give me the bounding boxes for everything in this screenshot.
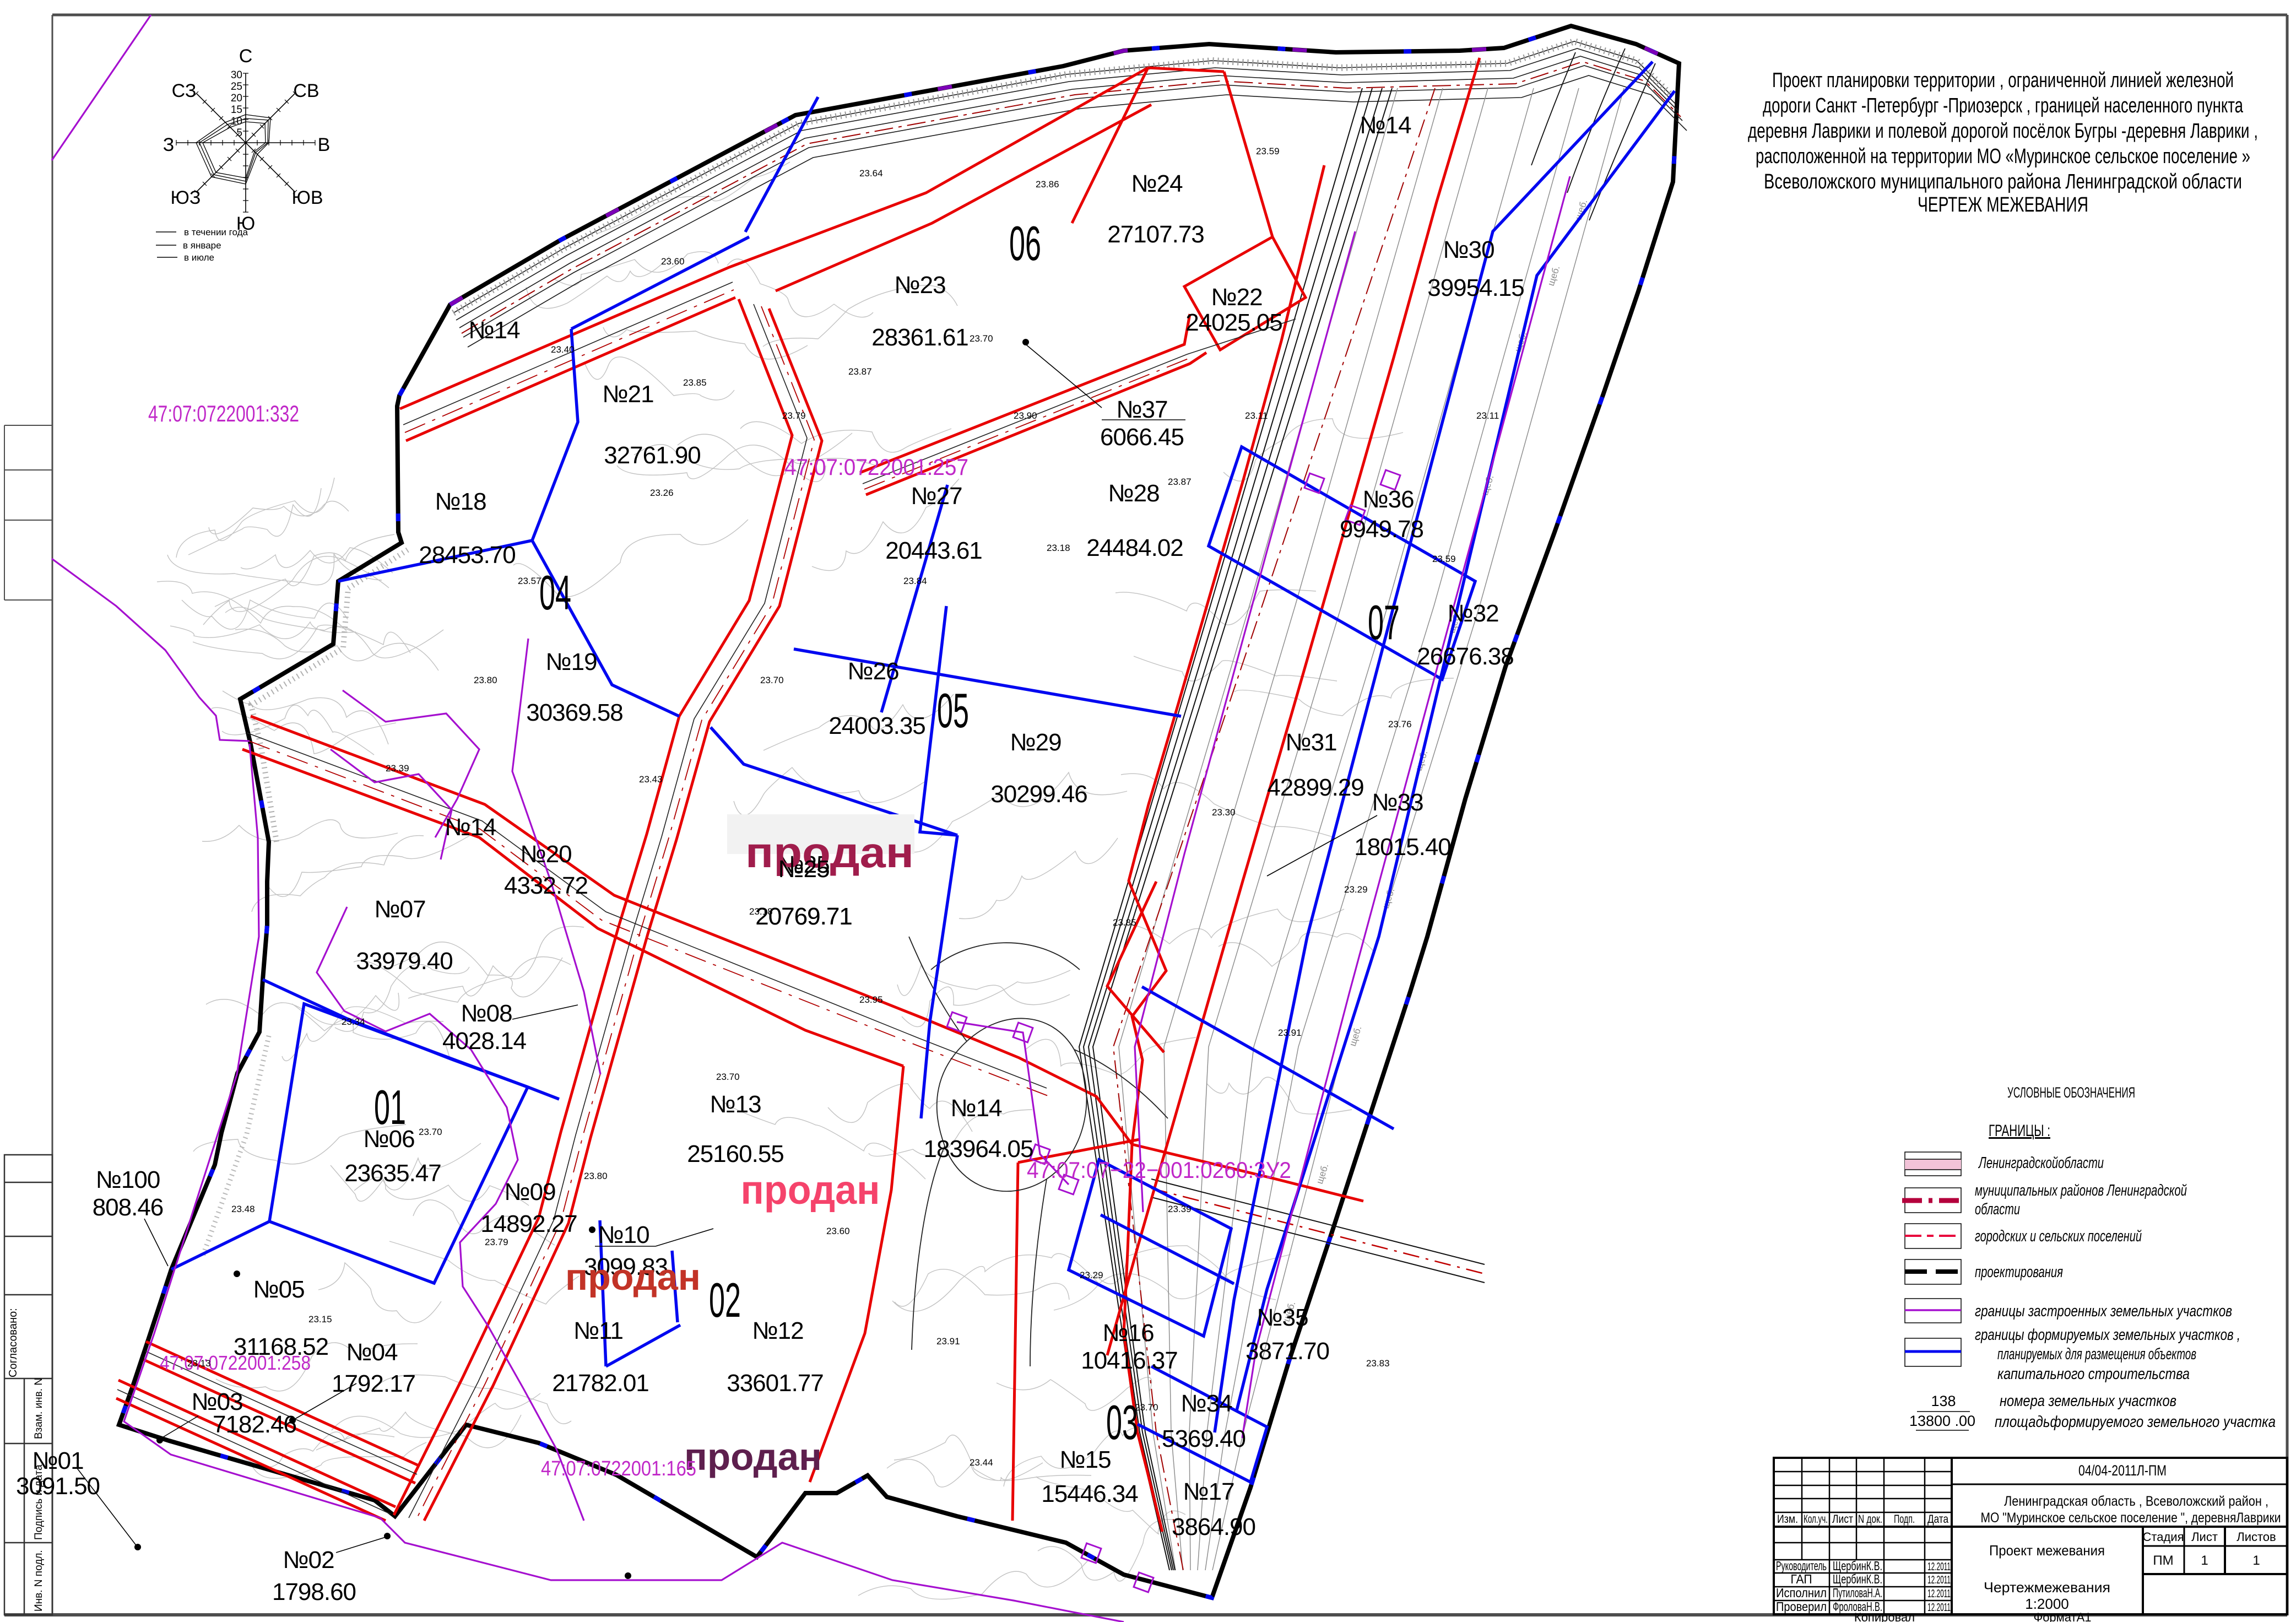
svg-text:23.70: 23.70 bbox=[760, 675, 784, 685]
svg-text:23.60: 23.60 bbox=[826, 1226, 850, 1236]
svg-text:№14: №14 bbox=[445, 814, 496, 841]
svg-text:47:07:0722001:257: 47:07:0722001:257 bbox=[784, 454, 968, 480]
svg-text:продан: продан bbox=[565, 1256, 701, 1298]
svg-text:47:07:0722001:165: 47:07:0722001:165 bbox=[541, 1457, 696, 1480]
svg-text:ЮВ: ЮВ bbox=[291, 187, 323, 208]
svg-text:№18: №18 bbox=[435, 488, 486, 515]
svg-text:23.70: 23.70 bbox=[716, 1072, 740, 1082]
svg-text:808.46: 808.46 bbox=[93, 1194, 164, 1221]
svg-text:Чертежмежевания: Чертежмежевания bbox=[1984, 1579, 2110, 1596]
svg-text:муниципальных районов Ленинг: муниципальных районов Ленинградской bbox=[1975, 1182, 2187, 1199]
svg-text:23.39: 23.39 bbox=[1168, 1204, 1192, 1214]
svg-text:проектирования: проектирования bbox=[1975, 1263, 2063, 1281]
svg-text:№05: №05 bbox=[253, 1276, 304, 1303]
svg-text:23.79: 23.79 bbox=[485, 1237, 508, 1247]
svg-text:4028.14: 4028.14 bbox=[442, 1028, 527, 1055]
svg-text:Исполнил: Исполнил bbox=[1776, 1586, 1827, 1600]
svg-text:С: С bbox=[239, 46, 253, 67]
svg-text:№16: №16 bbox=[1102, 1320, 1154, 1347]
svg-text:дороги Санкт -Петербург -Прио: дороги Санкт -Петербург -Приозерск , гра… bbox=[1763, 94, 2244, 117]
svg-text:городских и сельских поселений: городских и сельских поселений bbox=[1975, 1228, 2142, 1245]
svg-text:04/04-2011Л-ПМ: 04/04-2011Л-ПМ bbox=[2078, 1462, 2167, 1479]
svg-text:23.90: 23.90 bbox=[1014, 410, 1037, 421]
svg-text:138: 138 bbox=[1931, 1393, 1956, 1409]
svg-text:№31: №31 bbox=[1285, 729, 1336, 756]
svg-text:Всеволожского муниципального: Всеволожского муниципального района Лени… bbox=[1764, 170, 2242, 193]
svg-text:01: 01 bbox=[374, 1080, 406, 1134]
svg-text:33979.40: 33979.40 bbox=[356, 948, 453, 975]
svg-text:28453.70: 28453.70 bbox=[419, 542, 516, 569]
svg-text:3864.90: 3864.90 bbox=[1172, 1513, 1255, 1540]
svg-text:23.64: 23.64 bbox=[859, 168, 883, 179]
svg-text:23.70: 23.70 bbox=[1135, 1402, 1158, 1413]
svg-text:№09: №09 bbox=[504, 1178, 555, 1205]
svg-text:№22: №22 bbox=[1211, 284, 1262, 311]
svg-text:23.18: 23.18 bbox=[1047, 543, 1070, 553]
svg-text:№32: №32 bbox=[1447, 600, 1498, 627]
svg-text:№37: №37 bbox=[1116, 396, 1167, 423]
svg-text:№28: №28 bbox=[1108, 480, 1159, 507]
svg-text:23.83: 23.83 bbox=[1366, 1358, 1390, 1369]
svg-text:№14: №14 bbox=[950, 1095, 1002, 1122]
svg-text:Кол.уч.: Кол.уч. bbox=[1804, 1513, 1828, 1526]
svg-text:Инв. N подл.: Инв. N подл. bbox=[33, 1550, 45, 1612]
svg-text:СВ: СВ bbox=[293, 80, 319, 101]
svg-text:№30: №30 bbox=[1443, 236, 1494, 263]
svg-text:номера земельных участков: номера земельных участков bbox=[2000, 1392, 2176, 1410]
svg-text:в январе: в январе bbox=[183, 240, 221, 251]
svg-text:в течении года: в течении года bbox=[184, 227, 248, 237]
svg-text:39954.15: 39954.15 bbox=[1427, 274, 1524, 301]
svg-text:23.39: 23.39 bbox=[386, 763, 409, 774]
svg-text:ЮЗ: ЮЗ bbox=[171, 187, 201, 208]
svg-text:23.26: 23.26 bbox=[650, 488, 674, 498]
svg-text:№13: №13 bbox=[710, 1091, 761, 1118]
svg-text:ФорматА1: ФорматА1 bbox=[2033, 1610, 2091, 1622]
svg-text:23.13: 23.13 bbox=[187, 1358, 211, 1369]
svg-text:Проверил: Проверил bbox=[1776, 1599, 1827, 1614]
svg-text:24025.05: 24025.05 bbox=[1185, 309, 1282, 336]
svg-text:МО "Муринское сельское посе: МО "Муринское сельское поселение ", дере… bbox=[1981, 1510, 2281, 1526]
svg-text:23.59: 23.59 bbox=[1256, 146, 1280, 156]
svg-text:23.15: 23.15 bbox=[308, 1314, 332, 1324]
svg-text:23.57: 23.57 bbox=[518, 576, 541, 586]
svg-text:12.2011: 12.2011 bbox=[1927, 1602, 1951, 1614]
svg-text:24003.35: 24003.35 bbox=[828, 712, 925, 739]
svg-text:границы формируемых земельны: границы формируемых земельных участков , bbox=[1975, 1326, 2240, 1344]
svg-text:№02: №02 bbox=[283, 1547, 334, 1574]
svg-text:5369.40: 5369.40 bbox=[1162, 1425, 1246, 1452]
svg-text:№36: №36 bbox=[1362, 486, 1414, 513]
svg-text:области: области bbox=[1975, 1201, 2020, 1218]
svg-text:47:07:0722001:332: 47:07:0722001:332 bbox=[148, 401, 299, 426]
svg-text:№21: №21 bbox=[602, 381, 653, 408]
svg-text:23.40: 23.40 bbox=[551, 344, 575, 355]
svg-text:06: 06 bbox=[1009, 216, 1041, 271]
svg-text:ЩербинК.В.: ЩербинК.В. bbox=[1833, 1559, 1882, 1573]
svg-text:23.60: 23.60 bbox=[661, 256, 685, 267]
svg-text:12.2011: 12.2011 bbox=[1927, 1588, 1951, 1600]
svg-text:Лист: Лист bbox=[2191, 1530, 2218, 1544]
svg-text:23.11: 23.11 bbox=[1245, 410, 1268, 421]
svg-text:СЗ: СЗ bbox=[172, 80, 197, 101]
svg-text:Проект планировки территории: Проект планировки территории , ограничен… bbox=[1772, 69, 2234, 92]
svg-text:23.34: 23.34 bbox=[342, 1017, 365, 1027]
svg-text:23.95: 23.95 bbox=[859, 994, 883, 1005]
svg-text:30: 30 bbox=[231, 69, 242, 81]
svg-text:ГАП: ГАП bbox=[1791, 1572, 1812, 1586]
svg-text:№34: №34 bbox=[1181, 1390, 1232, 1417]
svg-text:№15: №15 bbox=[1059, 1446, 1111, 1473]
svg-text:№27: №27 bbox=[911, 483, 962, 510]
svg-text:Копировал: Копировал bbox=[1854, 1610, 1915, 1622]
svg-text:10416.37: 10416.37 bbox=[1081, 1347, 1178, 1374]
svg-text:23.80: 23.80 bbox=[584, 1171, 608, 1181]
svg-text:23.18: 23.18 bbox=[749, 906, 773, 917]
svg-text:Подп.: Подп. bbox=[1894, 1513, 1915, 1526]
svg-text:23.29: 23.29 bbox=[1080, 1270, 1103, 1280]
svg-text:№33: №33 bbox=[1372, 789, 1423, 816]
svg-text:деревня Лаврики и полевой д: деревня Лаврики и полевой дорогой посёло… bbox=[1748, 120, 2258, 143]
svg-text:продан: продан bbox=[684, 1435, 822, 1478]
svg-text:№19: №19 bbox=[545, 648, 597, 675]
svg-text:15: 15 bbox=[231, 104, 242, 116]
svg-text:23.44: 23.44 bbox=[970, 1457, 993, 1468]
svg-text:23.59: 23.59 bbox=[1432, 554, 1456, 564]
svg-text:20443.61: 20443.61 bbox=[885, 537, 982, 564]
svg-text:28361.61: 28361.61 bbox=[871, 324, 968, 351]
svg-text:площадьформируемого земельног: площадьформируемого земельного участка bbox=[1995, 1413, 2276, 1431]
svg-text:05: 05 bbox=[937, 683, 969, 738]
svg-text:Ленинградская область , Всево: Ленинградская область , Всеволожский рай… bbox=[2004, 1494, 2268, 1509]
svg-text:23.76: 23.76 bbox=[1388, 719, 1412, 729]
svg-text:4332.72: 4332.72 bbox=[504, 872, 588, 899]
svg-text:10: 10 bbox=[231, 116, 242, 127]
svg-text:планируемых для размещения: планируемых для размещения объектов bbox=[1997, 1345, 2196, 1363]
svg-text:Согласовано:: Согласовано: bbox=[7, 1308, 19, 1377]
svg-text:04: 04 bbox=[539, 565, 571, 620]
svg-text:в июле: в июле bbox=[184, 252, 214, 263]
svg-text:23.85: 23.85 bbox=[1113, 917, 1136, 928]
svg-text:23.80: 23.80 bbox=[474, 675, 497, 685]
svg-text:№23: №23 bbox=[894, 272, 945, 299]
svg-text:ЧЕРТЕЖ МЕЖЕВАНИЯ: ЧЕРТЕЖ МЕЖЕВАНИЯ bbox=[1918, 193, 2088, 217]
svg-text:Взам. инв. N: Взам. инв. N bbox=[33, 1378, 45, 1439]
svg-text:5: 5 bbox=[236, 127, 242, 139]
svg-text:30369.58: 30369.58 bbox=[526, 699, 623, 726]
svg-text:47:07:0722001:258: 47:07:0722001:258 bbox=[160, 1351, 311, 1374]
svg-text:Руководитель: Руководитель bbox=[1776, 1559, 1827, 1573]
svg-text:14892.27: 14892.27 bbox=[480, 1210, 577, 1237]
svg-text:9949.78: 9949.78 bbox=[1340, 516, 1423, 543]
svg-text:границы застроенных земельны: границы застроенных земельных участков bbox=[1975, 1302, 2232, 1320]
svg-text:Ленинградскойобласти: Ленинградскойобласти bbox=[1978, 1154, 2104, 1172]
svg-text:Изм.: Изм. bbox=[1777, 1513, 1798, 1526]
svg-text:26676.38: 26676.38 bbox=[1417, 643, 1514, 670]
svg-text:З: З bbox=[163, 134, 175, 155]
svg-text:25: 25 bbox=[231, 81, 242, 93]
svg-text:1798.60: 1798.60 bbox=[272, 1578, 356, 1605]
svg-text:продан: продан bbox=[741, 1167, 880, 1213]
svg-text:Лист: Лист bbox=[1832, 1513, 1853, 1526]
svg-text:7182.46: 7182.46 bbox=[213, 1411, 296, 1438]
svg-text:15446.34: 15446.34 bbox=[1041, 1480, 1138, 1507]
svg-text:УСЛОВНЫЕ ОБОЗНАЧЕНИЯ: УСЛОВНЫЕ ОБОЗНАЧЕНИЯ bbox=[2007, 1084, 2135, 1101]
svg-text:42899.29: 42899.29 bbox=[1267, 774, 1364, 801]
svg-text:23635.47: 23635.47 bbox=[344, 1160, 441, 1187]
svg-text:23.91: 23.91 bbox=[1278, 1028, 1302, 1038]
svg-text:№100: №100 bbox=[96, 1166, 160, 1193]
svg-text:23.30: 23.30 bbox=[1212, 807, 1236, 818]
svg-text:1:2000: 1:2000 bbox=[2025, 1596, 2069, 1612]
svg-text:1: 1 bbox=[2201, 1553, 2208, 1568]
svg-text:№35: №35 bbox=[1257, 1304, 1308, 1331]
svg-text:23.87: 23.87 bbox=[848, 366, 872, 377]
svg-text:23.48: 23.48 bbox=[231, 1204, 255, 1214]
svg-text:33601.77: 33601.77 bbox=[727, 1370, 824, 1397]
svg-text:23.29: 23.29 bbox=[1344, 884, 1368, 895]
svg-text:В: В bbox=[318, 134, 331, 155]
svg-text:ПутиловаН.А.: ПутиловаН.А. bbox=[1833, 1586, 1882, 1600]
svg-text:1: 1 bbox=[2252, 1553, 2260, 1568]
svg-text:24484.02: 24484.02 bbox=[1086, 534, 1183, 561]
svg-text:21782.01: 21782.01 bbox=[552, 1370, 649, 1397]
svg-text:ЩербинК.В.: ЩербинК.В. bbox=[1833, 1572, 1882, 1586]
svg-text:№12: №12 bbox=[752, 1317, 803, 1344]
svg-text:№26: №26 bbox=[847, 658, 898, 685]
svg-text:23.43: 23.43 bbox=[639, 774, 663, 785]
svg-text:25160.55: 25160.55 bbox=[687, 1140, 784, 1167]
svg-text:23.70: 23.70 bbox=[419, 1127, 442, 1137]
svg-text:3871.70: 3871.70 bbox=[1246, 1338, 1329, 1365]
svg-text:№04: №04 bbox=[346, 1339, 398, 1366]
svg-text:183964.05: 183964.05 bbox=[924, 1136, 1033, 1163]
svg-text:№11: №11 bbox=[573, 1317, 623, 1344]
svg-text:№01: №01 bbox=[32, 1447, 83, 1474]
svg-text:№14: №14 bbox=[1360, 112, 1411, 139]
svg-text:№07: №07 bbox=[374, 896, 425, 923]
svg-text:3091.50: 3091.50 bbox=[16, 1473, 100, 1500]
svg-text:6066.45: 6066.45 bbox=[1100, 424, 1184, 451]
svg-text:№25: №25 bbox=[778, 856, 829, 883]
svg-text:Проект межевания: Проект межевания bbox=[1989, 1542, 2105, 1559]
svg-text:№08: №08 bbox=[461, 1000, 512, 1027]
svg-text:07: 07 bbox=[1368, 595, 1400, 650]
svg-text:Дата: Дата bbox=[1927, 1513, 1948, 1526]
svg-text:№29: №29 bbox=[1010, 729, 1061, 756]
svg-text:Листов: Листов bbox=[2237, 1530, 2276, 1544]
svg-text:капитального строительства: капитального строительства bbox=[1997, 1365, 2190, 1383]
svg-text:продан: продан bbox=[745, 828, 914, 877]
svg-text:23.70: 23.70 bbox=[970, 333, 993, 344]
svg-text:20: 20 bbox=[231, 93, 242, 104]
svg-text:12.2011: 12.2011 bbox=[1927, 1561, 1951, 1573]
svg-text:27107.73: 27107.73 bbox=[1107, 221, 1204, 248]
svg-text:№14: №14 bbox=[468, 317, 520, 344]
svg-text:Стадия: Стадия bbox=[2143, 1530, 2184, 1544]
svg-text:ГРАНИЦЫ :: ГРАНИЦЫ : bbox=[1989, 1122, 2050, 1140]
svg-text:30299.46: 30299.46 bbox=[990, 781, 1087, 808]
svg-text:расположенной на территории: расположенной на территории МО «Муринско… bbox=[1756, 145, 2250, 168]
svg-text:№10: №10 bbox=[598, 1221, 649, 1248]
svg-text:23.91: 23.91 bbox=[936, 1336, 960, 1347]
svg-text:23.85: 23.85 bbox=[683, 377, 707, 388]
svg-text:13800 .00: 13800 .00 bbox=[1909, 1413, 1975, 1429]
svg-text:03: 03 bbox=[1106, 1395, 1138, 1450]
svg-text:02: 02 bbox=[709, 1273, 741, 1327]
svg-text:23.86: 23.86 bbox=[1036, 179, 1059, 190]
svg-text:N док.: N док. bbox=[1858, 1513, 1882, 1526]
svg-text:№24: №24 bbox=[1131, 170, 1183, 197]
svg-text:№17: №17 bbox=[1183, 1478, 1234, 1505]
svg-text:18015.40: 18015.40 bbox=[1354, 834, 1451, 861]
svg-text:1792.17: 1792.17 bbox=[332, 1370, 415, 1397]
svg-text:ПМ: ПМ bbox=[2153, 1553, 2173, 1568]
svg-text:23.84: 23.84 bbox=[903, 576, 927, 586]
svg-text:23.11: 23.11 bbox=[1476, 410, 1499, 421]
svg-text:12.2011: 12.2011 bbox=[1927, 1574, 1951, 1586]
svg-text:47:07:07−22−001:0260:3У2: 47:07:07−22−001:0260:3У2 bbox=[1027, 1157, 1291, 1183]
svg-text:32761.90: 32761.90 bbox=[604, 442, 701, 469]
svg-text:23.79: 23.79 bbox=[782, 410, 806, 421]
svg-text:23.87: 23.87 bbox=[1168, 477, 1192, 487]
svg-text:№20: №20 bbox=[520, 841, 571, 868]
